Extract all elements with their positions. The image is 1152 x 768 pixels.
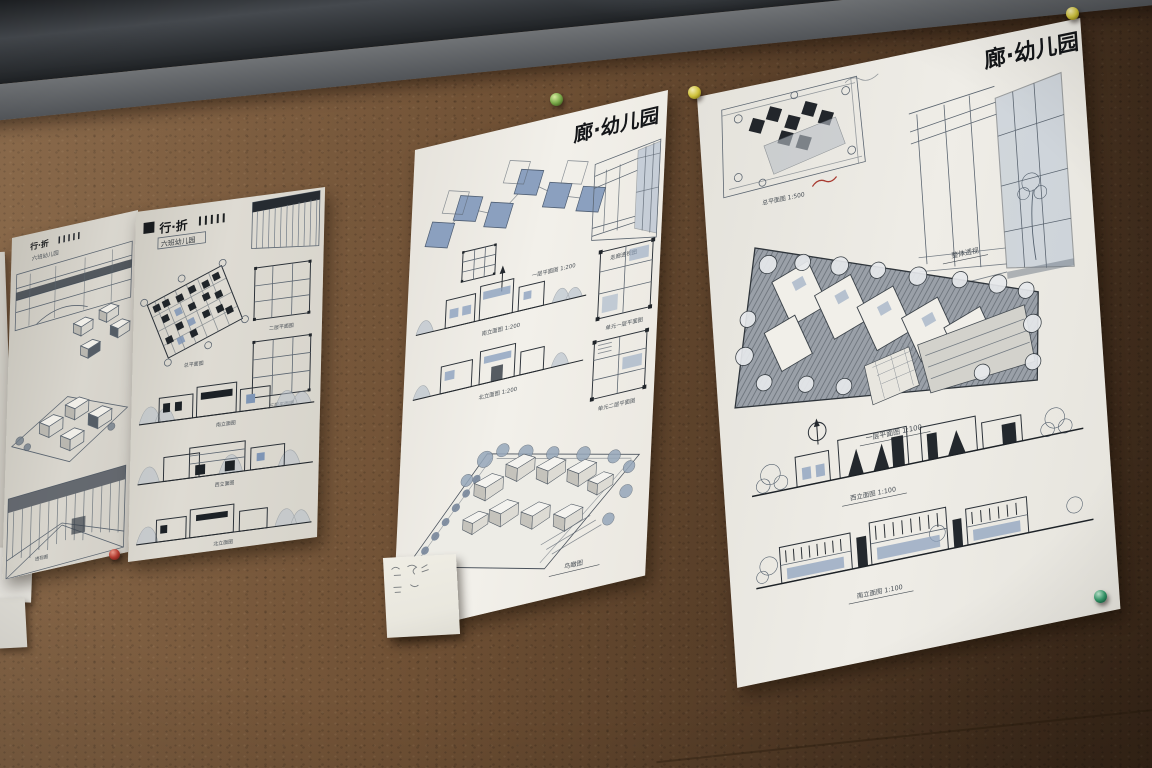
paper-tag-2	[0, 597, 27, 649]
poster3-unit2-caption: 单元二层平面图	[598, 396, 636, 413]
poster-3: 廊·幼儿园	[392, 90, 668, 636]
pushpin-green-icon	[550, 93, 563, 106]
poster4-north-arrow	[807, 417, 826, 447]
poster2-site-plan	[138, 253, 251, 371]
poster3-unit1-caption: 单元一层平面图	[605, 315, 643, 332]
poster2-plan2-caption: 二层平面图	[269, 323, 294, 332]
poster4-pencil-note	[845, 73, 879, 85]
pushpin-yellow-icon	[1066, 7, 1079, 20]
poster1-axon-large	[11, 383, 128, 475]
poster1-courtyard-perspective	[6, 465, 126, 579]
poster2-elev1-caption: 南立面图	[216, 419, 236, 429]
poster4-elevation-west	[749, 390, 1083, 497]
poster2-curtain-perspective	[251, 191, 320, 255]
poster2-elevation-2	[138, 432, 314, 485]
poster3-unit-plan-2	[590, 328, 649, 402]
poster2-title-block	[143, 222, 154, 234]
corkboard-photo: 行·折 六班幼儿园	[0, 0, 1152, 768]
poster3-zigzag-plan	[425, 137, 608, 253]
pushpin-yellow-icon	[688, 86, 701, 99]
poster-1: 行·折 六班幼儿园	[2, 210, 138, 580]
poster2-elevation-3	[136, 494, 312, 545]
corkboard-seam	[656, 705, 1152, 763]
poster4-red-grade-mark	[812, 177, 837, 187]
poster-2: 行·折 六班幼儿园	[128, 187, 325, 562]
pushpin-teal-icon	[1094, 590, 1107, 603]
poster3-unit-plan-1	[596, 237, 656, 321]
poster1-perspective-caption: 透视图	[35, 553, 49, 563]
poster3-elevation-2	[413, 327, 585, 400]
poster2-title-ticks	[199, 213, 225, 225]
poster2-floor-plan-3	[251, 333, 312, 399]
poster2-floor-plan-2	[253, 260, 312, 322]
poster1-title-ticks	[58, 232, 79, 244]
poster3-small-plan	[461, 243, 497, 283]
poster3-title: 廊·幼儿园	[573, 103, 659, 147]
poster2-elev2-caption: 西立面图	[215, 479, 235, 489]
sticky-note-handwriting	[391, 564, 429, 592]
poster4-persp-label: 整体透视	[951, 245, 979, 260]
poster4-site-plan	[717, 76, 865, 198]
poster4-corridor-perspective	[908, 73, 1074, 298]
poster4-floor-plan	[725, 191, 1046, 442]
poster1-title: 行·折	[29, 238, 49, 252]
poster2-elevation-1	[139, 372, 315, 425]
poster3-elev1-caption: 南立面图 1:200	[481, 320, 520, 337]
poster4-site-caption: 总平面图 1:500	[762, 190, 805, 207]
poster2-title: 行·折	[158, 217, 188, 236]
poster3-elev2-caption: 北立面图 1:200	[478, 384, 517, 401]
poster2-elev3-caption: 北立面图	[213, 538, 233, 548]
sticky-note	[383, 554, 460, 638]
poster-4: 廊·幼儿园 总平面图	[697, 18, 1120, 688]
poster3-plan-caption: 一层平面图 1:200	[532, 261, 577, 280]
poster4-elevation-south	[753, 477, 1093, 588]
pushpin-red-icon	[109, 549, 120, 560]
poster2-site-caption: 总平面图	[184, 360, 204, 370]
poster4-title: 廊·幼儿园	[984, 29, 1080, 74]
poster1-axon-small	[72, 299, 130, 362]
